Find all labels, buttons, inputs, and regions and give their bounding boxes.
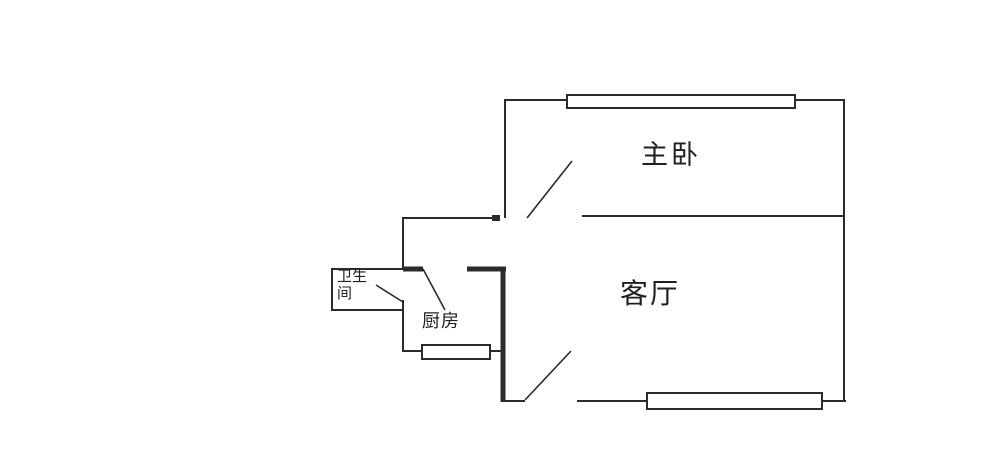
window-living-room: [647, 393, 822, 409]
doors: [376, 161, 572, 400]
room-label-kitchen: 厨房: [422, 311, 460, 331]
window-master-bedroom: [567, 95, 795, 108]
door-kitchen: [423, 269, 445, 310]
door-living-room: [525, 351, 571, 400]
door-bathroom: [376, 285, 403, 302]
windows: [422, 95, 822, 409]
floor-plan-canvas: 主卧 客厅 厨房 卫生间: [0, 0, 1000, 468]
walls-thick: [403, 267, 506, 402]
door-master-bedroom: [527, 161, 572, 218]
window-kitchen: [422, 345, 490, 359]
floor-plan-drawing: [0, 0, 1000, 468]
walls-thin: [331, 99, 846, 402]
room-label-living-room: 客厅: [620, 279, 680, 310]
room-label-bathroom: 卫生间: [337, 269, 371, 303]
room-label-master-bedroom: 主卧: [641, 140, 701, 170]
wall-end-cap: [492, 215, 500, 221]
